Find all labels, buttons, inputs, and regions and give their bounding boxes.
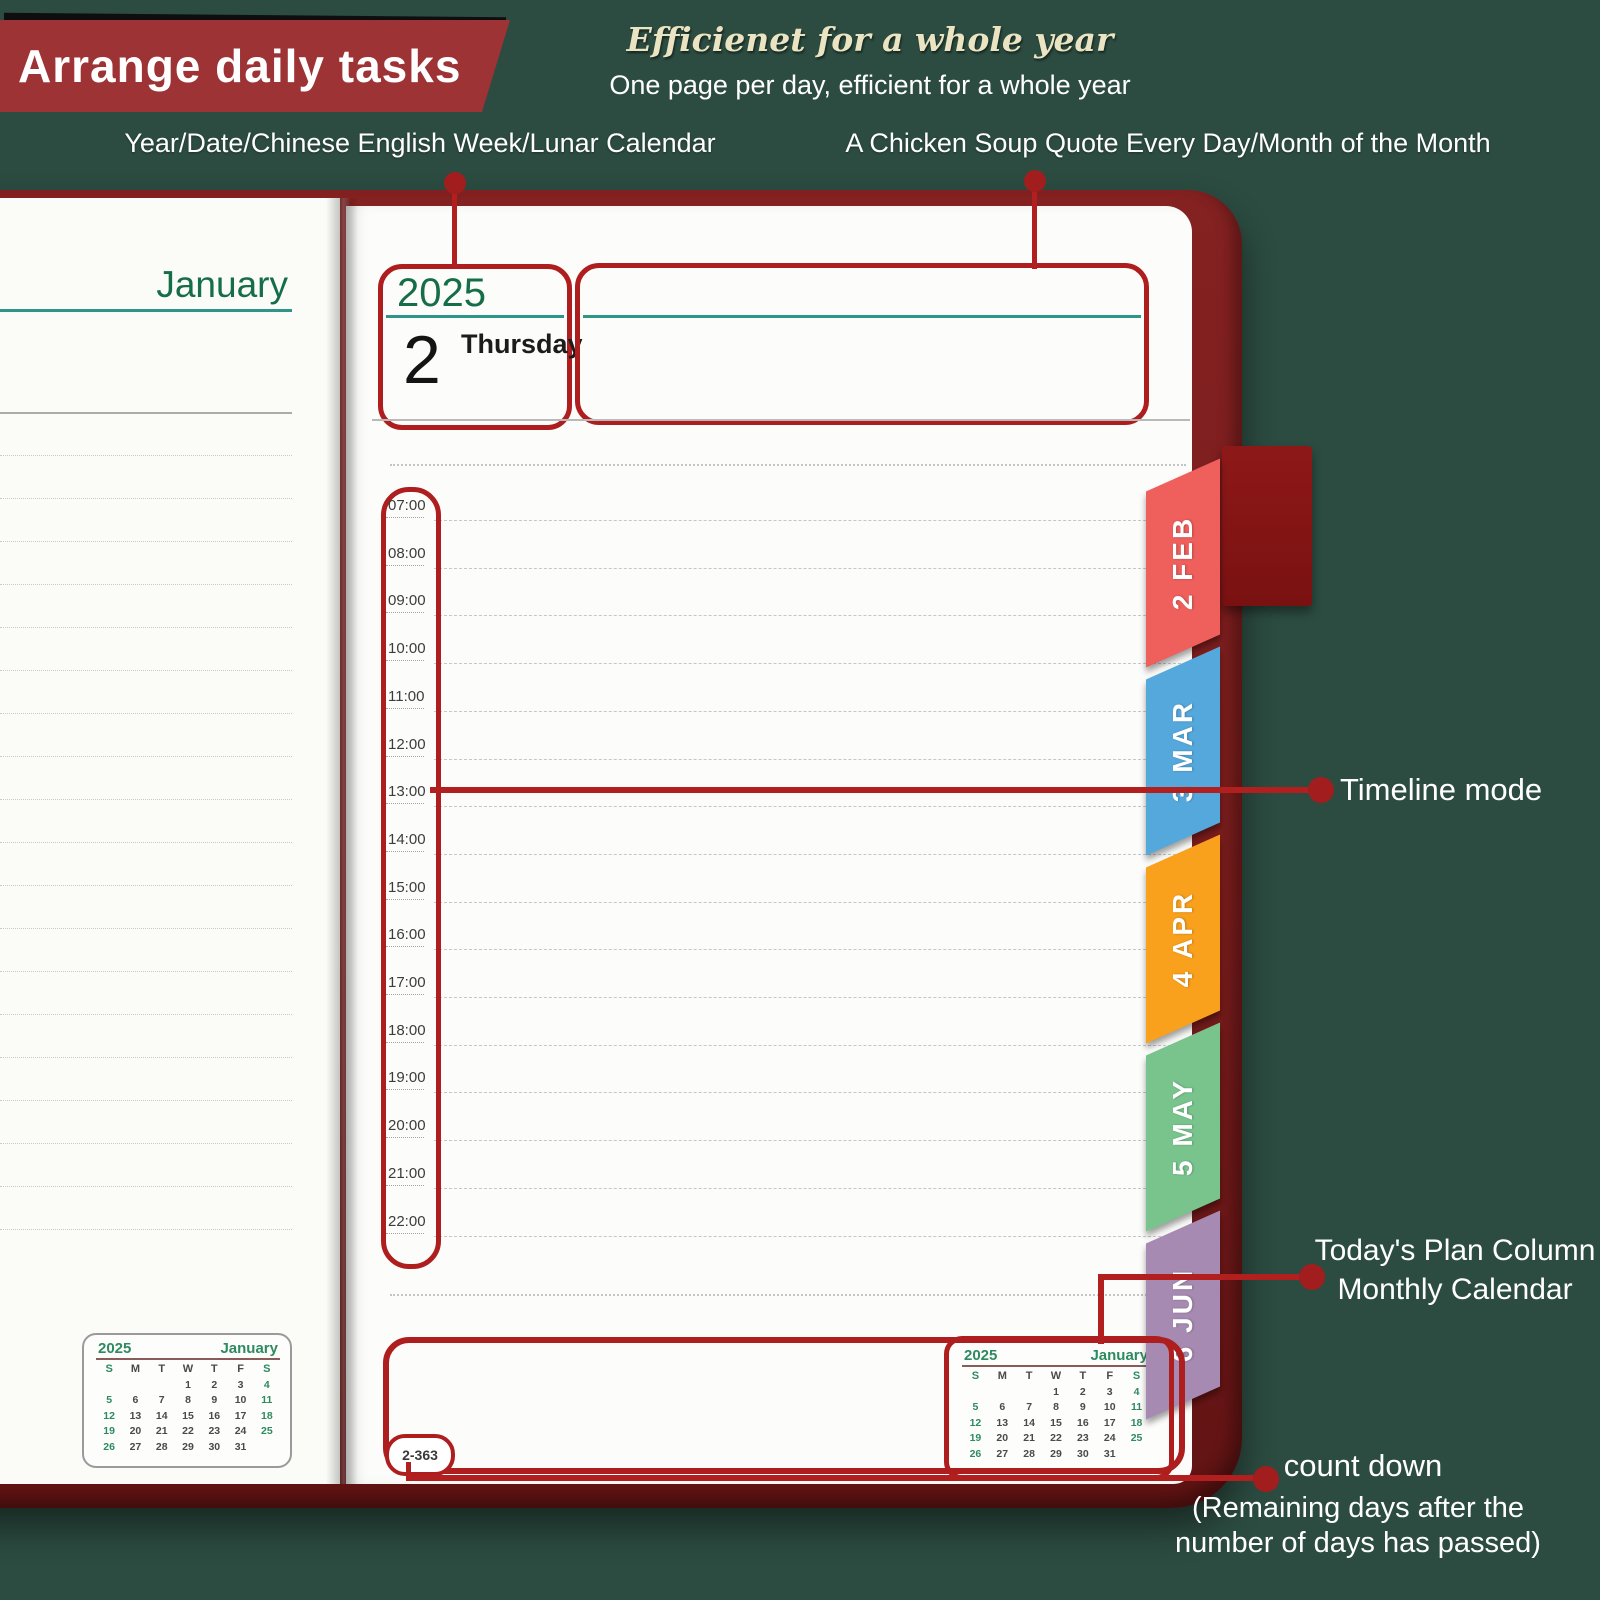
calendar-day: 15 (175, 1409, 201, 1425)
calendar-day-header: F (227, 1362, 253, 1378)
calendar-day: 1 (175, 1378, 201, 1394)
month-tab-label: 2 FEB (1095, 526, 1271, 600)
left-ruled-line (0, 713, 292, 714)
connector-date-block (452, 183, 457, 269)
time-label: 11:00 (388, 688, 424, 705)
time-label-underline (386, 803, 424, 804)
calendar-day: 28 (149, 1440, 175, 1456)
time-label-underline (386, 851, 424, 852)
month-tab-label: 5 MAY (1095, 1090, 1271, 1164)
calendar-day: 21 (149, 1424, 175, 1440)
time-label-underline (386, 517, 424, 518)
title-banner: Arrange daily tasks (0, 20, 510, 112)
hour-ruled-line (434, 902, 1186, 903)
time-label: 09:00 (388, 592, 426, 609)
mini-calendar-header: 2025January (84, 1335, 290, 1357)
countdown-annotation-line3: number of days has passed) (1118, 1527, 1598, 1560)
calendar-day: 25 (254, 1424, 280, 1440)
left-ruled-line (0, 584, 292, 585)
calendar-day: 16 (201, 1409, 227, 1425)
time-label: 07:00 (388, 497, 426, 514)
time-label-underline (386, 660, 424, 661)
time-label: 19:00 (388, 1069, 426, 1086)
day-number: 2 (403, 321, 441, 399)
calendar-day: 27 (122, 1440, 148, 1456)
time-label-underline (386, 565, 424, 566)
calendar-day-header: W (175, 1362, 201, 1378)
calendar-day: 3 (227, 1378, 253, 1394)
time-label: 17:00 (388, 974, 426, 991)
page-gutter (326, 198, 358, 1484)
tagline: Efficienet for a whole year (540, 20, 1200, 59)
left-ruled-line (0, 541, 292, 542)
connector-timeline (430, 787, 1322, 793)
connector-dot-date (444, 172, 466, 194)
hour-ruled-line (434, 1236, 1186, 1237)
calendar-day (96, 1378, 122, 1394)
left-page-title-rule (0, 309, 292, 312)
connector-dot-timeline (1308, 777, 1334, 803)
hour-ruled-line (434, 806, 1186, 807)
left-ruled-line (0, 670, 292, 671)
left-page-top-rule (0, 412, 292, 414)
mini-calendar-rule (96, 1358, 280, 1360)
plan-annotation-label: Today's Plan Column Monthly Calendar (1310, 1231, 1600, 1309)
month-tab-label: 3 MAR (1095, 714, 1271, 788)
countdown-highlight-oval: 2-363 (385, 1434, 455, 1476)
hour-ruled-line (434, 759, 1186, 760)
time-label-underline (386, 1185, 424, 1186)
calendar-day: 19 (96, 1424, 122, 1440)
date-block-teal-rule (386, 315, 564, 318)
mini-calendar-month: January (220, 1340, 278, 1357)
left-page-mini-calendar: 2025JanuarySMTWTFS1234567891011121314151… (82, 1333, 292, 1468)
calendar-day (122, 1378, 148, 1394)
time-label-underline (386, 756, 424, 757)
time-label-underline (386, 1137, 424, 1138)
calendar-day: 13 (122, 1409, 148, 1425)
time-label: 08:00 (388, 545, 426, 562)
calendar-day: 30 (201, 1440, 227, 1456)
hour-ruled-line (434, 1188, 1186, 1189)
left-ruled-line (0, 799, 292, 800)
subtitle: One page per day, efficient for a whole … (540, 70, 1200, 101)
calendar-day-header: S (254, 1362, 280, 1378)
left-ruled-line (0, 885, 292, 886)
hour-ruled-line (434, 1045, 1186, 1046)
calendar-day: 31 (227, 1440, 253, 1456)
calendar-day: 17 (227, 1409, 253, 1425)
callout-left-label: Year/Date/Chinese English Week/Lunar Cal… (105, 128, 735, 159)
time-label: 20:00 (388, 1117, 426, 1134)
month-tab-label: 4 APR (1095, 902, 1271, 976)
calendar-day: 6 (122, 1393, 148, 1409)
calendar-day: 26 (96, 1440, 122, 1456)
left-ruled-line (0, 455, 292, 456)
left-ruled-line (0, 756, 292, 757)
year-label: 2025 (397, 271, 486, 316)
left-ruled-line (0, 498, 292, 499)
calendar-day: 4 (254, 1378, 280, 1394)
banner-title: Arrange daily tasks (0, 39, 461, 93)
left-ruled-line (0, 1229, 292, 1230)
hour-ruled-line (434, 520, 1186, 521)
time-label-underline (386, 946, 424, 947)
time-label-underline (386, 1233, 424, 1234)
time-label-underline (386, 1089, 424, 1090)
calendar-day: 8 (175, 1393, 201, 1409)
calendar-day: 18 (254, 1409, 280, 1425)
calendar-day: 29 (175, 1440, 201, 1456)
hour-ruled-line (434, 568, 1186, 569)
calendar-day-header: S (96, 1362, 122, 1378)
hour-ruled-line (434, 949, 1186, 950)
connector-plan-horizontal (1098, 1274, 1312, 1280)
time-label: 10:00 (388, 640, 426, 657)
calendar-day: 12 (96, 1409, 122, 1425)
time-label-underline (386, 994, 424, 995)
hour-ruled-line (434, 997, 1186, 998)
calendar-day: 22 (175, 1424, 201, 1440)
mini-calendar-grid: SMTWTFS123456789101112131415161718192021… (84, 1362, 290, 1455)
hour-ruled-line (434, 1140, 1186, 1141)
header-underline (372, 419, 1190, 421)
date-block-highlight-box: 2025 2 Thursday (378, 264, 572, 430)
time-label: 22:00 (388, 1213, 426, 1230)
plan-annotation-line1: Today's Plan Column (1310, 1231, 1600, 1270)
countdown-annotation-title: count down (1128, 1448, 1598, 1484)
month-tab-mar: 3 MAR (1146, 647, 1220, 856)
time-label: 12:00 (388, 736, 426, 753)
mini-calendar-year: 2025 (98, 1340, 131, 1357)
calendar-day: 9 (201, 1393, 227, 1409)
calendar-day: 14 (149, 1409, 175, 1425)
calendar-day: 2 (201, 1378, 227, 1394)
page-dotted-separator-bottom (390, 1294, 1186, 1296)
hour-ruled-line (434, 711, 1186, 712)
calendar-day-header: T (149, 1362, 175, 1378)
time-label: 14:00 (388, 831, 426, 848)
left-ruled-line (0, 971, 292, 972)
time-label: 21:00 (388, 1165, 426, 1182)
left-ruled-line (0, 1186, 292, 1187)
time-label-underline (386, 1042, 424, 1043)
callout-right-label: A Chicken Soup Quote Every Day/Month of … (818, 128, 1518, 159)
month-tab-apr: 4 APR (1146, 835, 1220, 1044)
calendar-day: 5 (96, 1393, 122, 1409)
left-ruled-line (0, 842, 292, 843)
quote-block-highlight-box (575, 263, 1149, 425)
month-tab-feb: 2 FEB (1146, 459, 1220, 668)
left-ruled-line (0, 1100, 292, 1101)
time-label-underline (386, 899, 424, 900)
connector-quote-block (1032, 181, 1037, 269)
month-tab-may: 5 MAY (1146, 1023, 1220, 1232)
time-label: 16:00 (388, 926, 426, 943)
time-label: 18:00 (388, 1022, 426, 1039)
calendar-day: 10 (227, 1393, 253, 1409)
left-ruled-line (0, 1014, 292, 1015)
time-label: 15:00 (388, 879, 426, 896)
page-dotted-separator-top (390, 464, 1186, 466)
connector-plan-vertical (1098, 1274, 1104, 1344)
left-ruled-line (0, 627, 292, 628)
hour-ruled-line (434, 615, 1186, 616)
hour-ruled-line (434, 854, 1186, 855)
calendar-day: 7 (149, 1393, 175, 1409)
connector-dot-quote (1024, 170, 1046, 192)
calendar-day-header: T (201, 1362, 227, 1378)
left-page-ruled-lines (0, 455, 292, 1295)
calendar-day: 11 (254, 1393, 280, 1409)
calendar-day: 23 (201, 1424, 227, 1440)
quote-block-teal-rule (583, 315, 1141, 318)
timeline-hours: 07:0008:0009:0010:0011:0012:0013:0014:00… (386, 497, 430, 1259)
hour-ruled-line (434, 1092, 1186, 1093)
countdown-annotation-line2: (Remaining days after the (1118, 1492, 1598, 1525)
time-label: 13:00 (388, 783, 426, 800)
left-page-month-title: January (58, 264, 288, 306)
plan-annotation-line2: Monthly Calendar (1310, 1270, 1600, 1309)
timeline-mode-label: Timeline mode (1340, 772, 1542, 808)
time-label-underline (386, 708, 424, 709)
calendar-day: 24 (227, 1424, 253, 1440)
countdown-value: 2-363 (402, 1447, 438, 1463)
calendar-day (254, 1440, 280, 1456)
weekday-label: Thursday (461, 329, 583, 360)
calendar-day (149, 1378, 175, 1394)
left-ruled-line (0, 928, 292, 929)
time-label-underline (386, 612, 424, 613)
timeline-ruled-lines (434, 497, 1186, 1259)
hour-ruled-line (434, 663, 1186, 664)
left-ruled-line (0, 1143, 292, 1144)
left-ruled-line (0, 1057, 292, 1058)
calendar-day: 20 (122, 1424, 148, 1440)
calendar-day-header: M (122, 1362, 148, 1378)
